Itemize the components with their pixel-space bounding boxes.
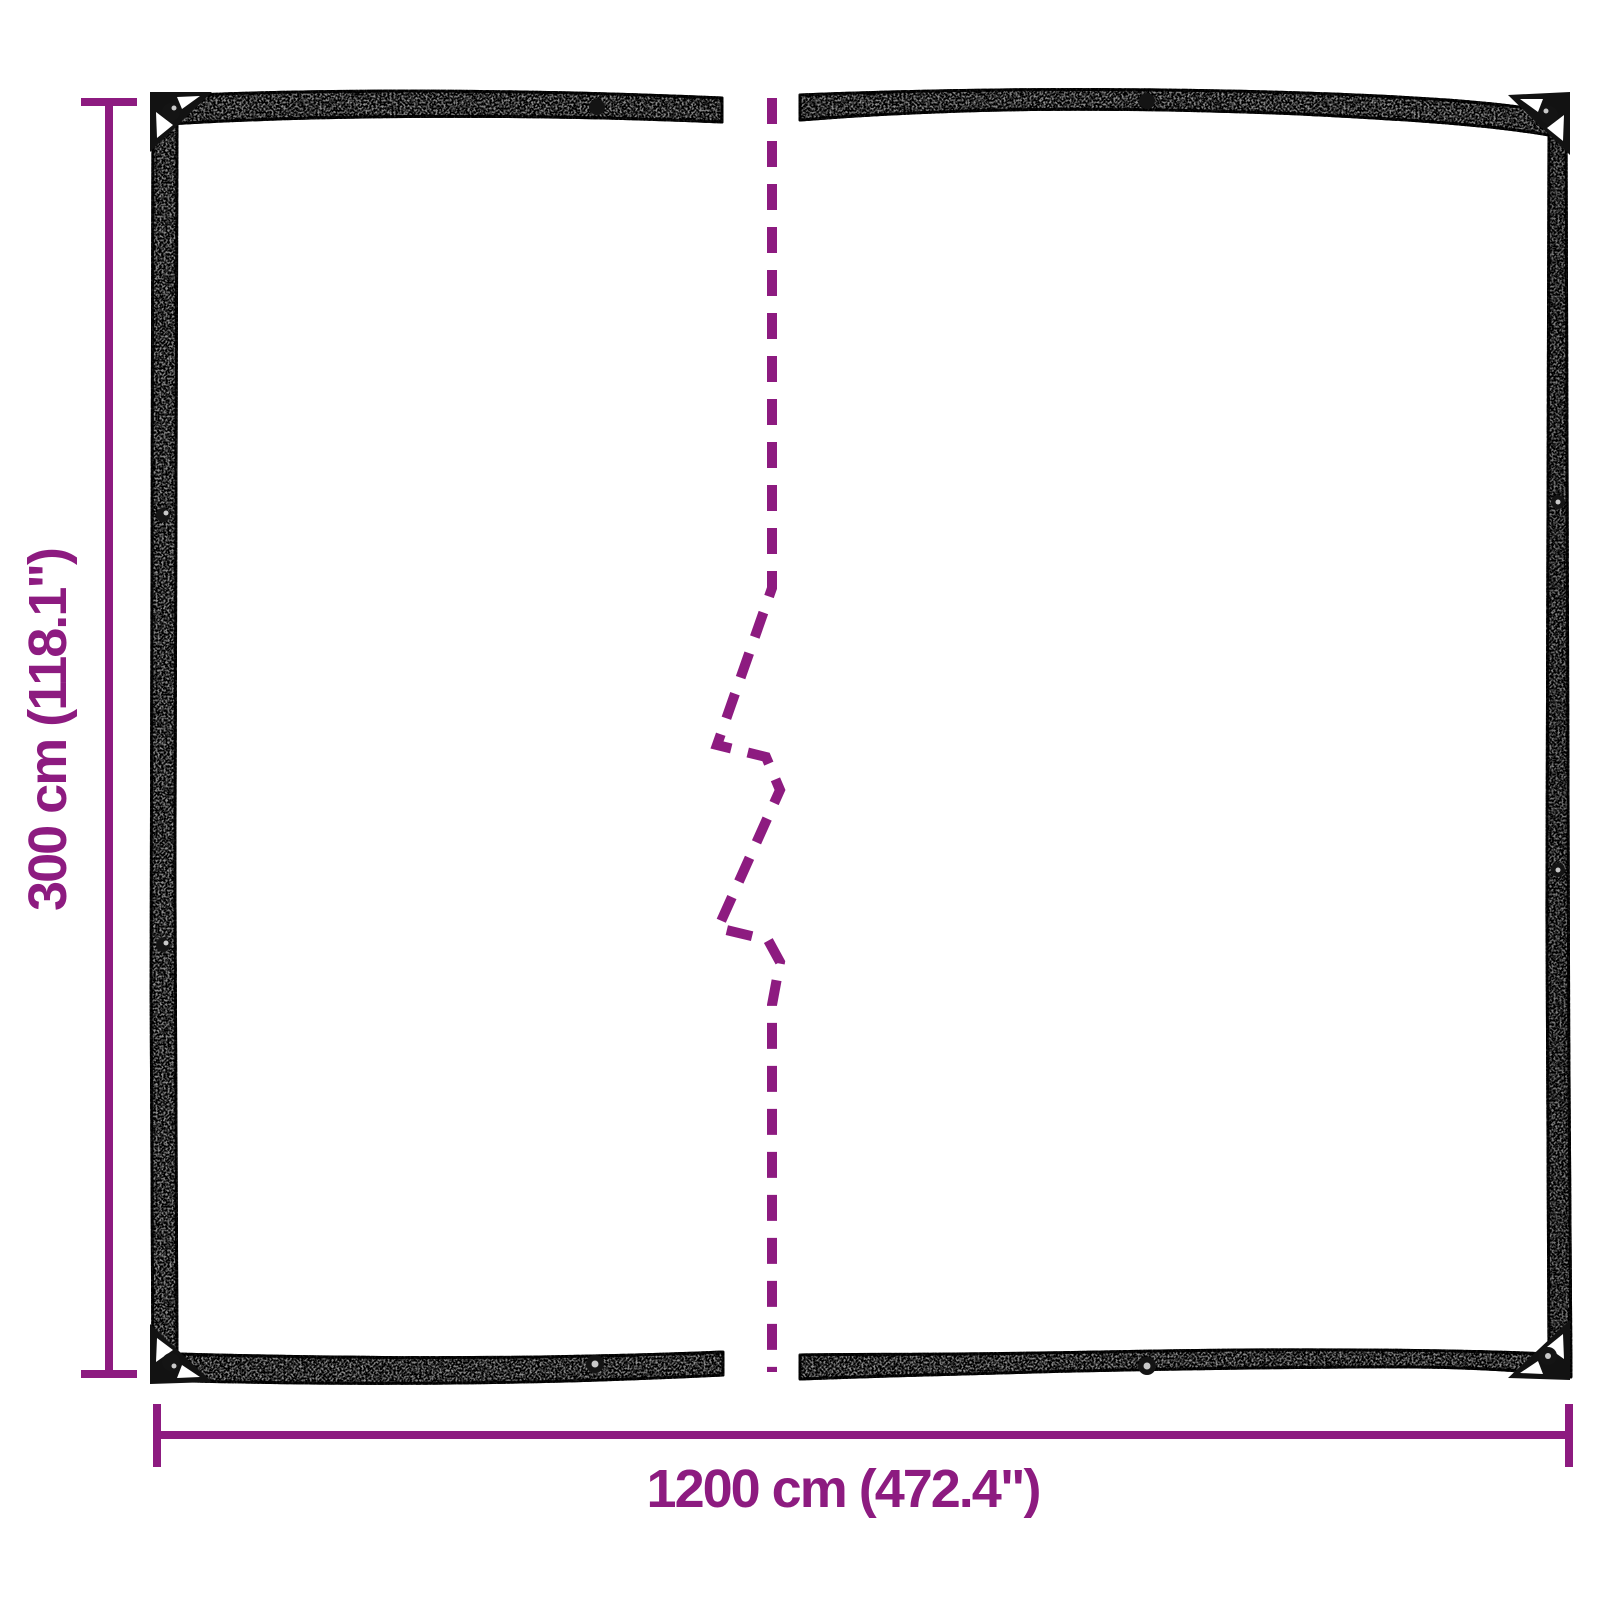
grommet-top-edge-right: [1139, 93, 1155, 109]
grommet-hole: [1544, 109, 1549, 114]
grommet: [162, 103, 180, 121]
width-label: 1200 cm (472.4"): [647, 1459, 1040, 1519]
tarp-left-edges: [151, 91, 723, 1383]
tarp-top-edge-left: [153, 91, 722, 125]
tarp-right-edge: [1547, 115, 1571, 1376]
diagram-canvas: 300 cm (118.1") 1200 cm (472.4"): [0, 0, 1600, 1600]
grommet-right-edge-upper: [1551, 495, 1565, 509]
tarp-bottom-edge-left: [153, 1352, 723, 1383]
height-label: 300 cm (118.1"): [18, 549, 78, 911]
grommet-hole: [172, 1364, 177, 1369]
grommet: [162, 1353, 180, 1371]
grommet-hole: [172, 106, 177, 111]
tarp-right-half: [800, 90, 1571, 1380]
grommet-left-edge-lower: [156, 938, 170, 952]
grommet-left-edge-upper: [156, 508, 170, 522]
width-dimension: 1200 cm (472.4"): [157, 1404, 1569, 1519]
grommet-right-edge-lower: [1551, 863, 1565, 877]
grommet-bottom-edge-left: [586, 1355, 604, 1373]
grommet-bottom-edge-right: [1138, 1357, 1156, 1375]
tarp-top-edge-right: [800, 90, 1566, 135]
corner-reinforcement-bottom-right: [1508, 1320, 1570, 1380]
tarp-left-edge: [151, 97, 177, 1380]
tarp-dimension-diagram: 300 cm (118.1") 1200 cm (472.4"): [0, 0, 1600, 1600]
tarp-left-half: [150, 91, 723, 1384]
grommet-top-edge-left: [589, 99, 605, 115]
tarp-bottom-edge-right: [800, 1350, 1571, 1379]
grommet-hole: [1545, 1353, 1551, 1359]
grommet: [1540, 106, 1558, 124]
tarp-right-edges: [800, 90, 1571, 1379]
break-line: [717, 98, 780, 1372]
height-dimension: 300 cm (118.1"): [18, 102, 137, 1374]
